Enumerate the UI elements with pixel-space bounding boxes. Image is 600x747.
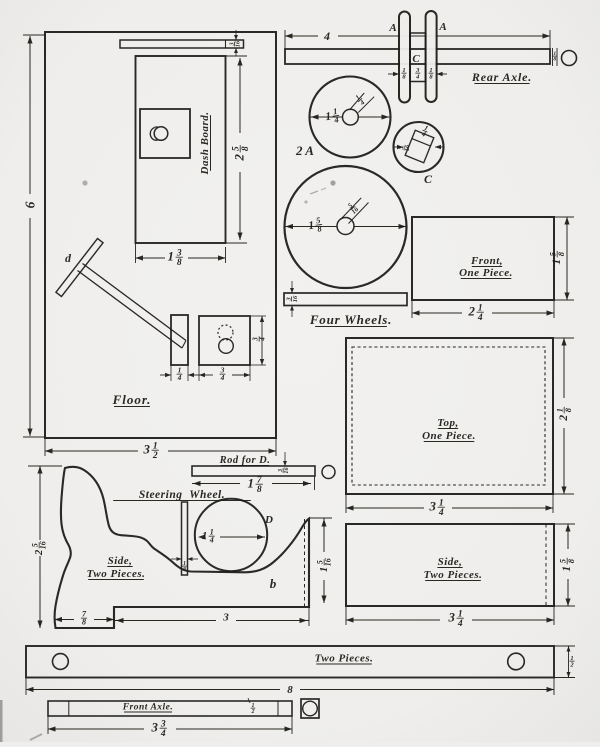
svg-text:2: 2 bbox=[251, 709, 255, 715]
svg-text:16: 16 bbox=[283, 467, 290, 474]
svg-text:Floor.: Floor. bbox=[112, 392, 152, 407]
svg-text:16: 16 bbox=[404, 144, 411, 151]
svg-text:Side,: Side, bbox=[108, 555, 133, 567]
svg-text:8: 8 bbox=[241, 146, 251, 151]
svg-text:d: d bbox=[65, 251, 72, 265]
svg-text:C: C bbox=[424, 172, 433, 186]
svg-text:16: 16 bbox=[235, 40, 242, 47]
svg-text:Two Pieces.: Two Pieces. bbox=[87, 568, 146, 580]
svg-text:3: 3 bbox=[222, 612, 229, 624]
svg-text:Front Axle.: Front Axle. bbox=[122, 703, 174, 713]
svg-text:2: 2 bbox=[467, 305, 475, 319]
svg-text:3: 3 bbox=[176, 248, 182, 258]
svg-text:A: A bbox=[388, 22, 396, 34]
svg-text:8: 8 bbox=[553, 57, 556, 63]
svg-text:A: A bbox=[438, 21, 446, 33]
svg-text:2: 2 bbox=[233, 154, 247, 162]
svg-text:Four Wheels.: Four Wheels. bbox=[309, 312, 392, 327]
svg-text:4: 4 bbox=[415, 73, 420, 80]
svg-text:1: 1 bbox=[167, 250, 173, 264]
svg-text:1: 1 bbox=[561, 566, 573, 572]
svg-text:Rear Axle.: Rear Axle. bbox=[471, 70, 532, 84]
svg-text:D: D bbox=[264, 514, 273, 526]
svg-text:1: 1 bbox=[202, 530, 207, 542]
svg-text:b: b bbox=[270, 576, 277, 591]
svg-text:Steering Wheel.: Steering Wheel. bbox=[139, 489, 225, 501]
svg-text:6: 6 bbox=[23, 201, 38, 208]
svg-text:16: 16 bbox=[292, 295, 299, 302]
svg-text:Front,: Front, bbox=[470, 255, 503, 267]
svg-text:8: 8 bbox=[257, 485, 262, 495]
svg-text:Side,: Side, bbox=[438, 556, 463, 568]
svg-text:3: 3 bbox=[447, 611, 455, 625]
svg-text:4: 4 bbox=[457, 619, 463, 629]
svg-text:3: 3 bbox=[142, 443, 150, 457]
svg-text:16: 16 bbox=[39, 541, 48, 549]
svg-text:1: 1 bbox=[247, 477, 253, 491]
svg-text:3: 3 bbox=[428, 500, 436, 514]
svg-text:8: 8 bbox=[183, 567, 186, 573]
svg-text:Rod for D.: Rod for D. bbox=[219, 455, 271, 466]
svg-text:8: 8 bbox=[177, 258, 182, 268]
svg-text:Dash Board.: Dash Board. bbox=[199, 112, 211, 176]
svg-text:2 A: 2 A bbox=[295, 143, 314, 158]
svg-text:2: 2 bbox=[152, 451, 158, 461]
svg-text:1: 1 bbox=[318, 567, 330, 572]
svg-text:Two Pieces.: Two Pieces. bbox=[424, 569, 483, 581]
svg-text:One Piece.: One Piece. bbox=[459, 267, 513, 279]
svg-text:Top,: Top, bbox=[437, 417, 458, 429]
svg-text:4: 4 bbox=[259, 337, 267, 342]
svg-text:4: 4 bbox=[323, 29, 330, 43]
svg-text:5: 5 bbox=[231, 146, 241, 151]
svg-text:4: 4 bbox=[438, 508, 444, 518]
svg-text:4: 4 bbox=[477, 313, 483, 323]
svg-text:One Piece.: One Piece. bbox=[422, 430, 476, 442]
svg-text:4: 4 bbox=[209, 536, 214, 545]
svg-text:4: 4 bbox=[160, 729, 166, 739]
svg-text:8: 8 bbox=[287, 684, 293, 696]
svg-text:3: 3 bbox=[150, 721, 158, 735]
svg-text:8: 8 bbox=[82, 618, 86, 627]
svg-text:2: 2 bbox=[558, 415, 570, 422]
svg-text:Two Pieces.: Two Pieces. bbox=[315, 653, 374, 665]
svg-text:1: 1 bbox=[551, 259, 563, 265]
svg-text:16: 16 bbox=[324, 558, 333, 566]
svg-text:C: C bbox=[412, 53, 420, 65]
